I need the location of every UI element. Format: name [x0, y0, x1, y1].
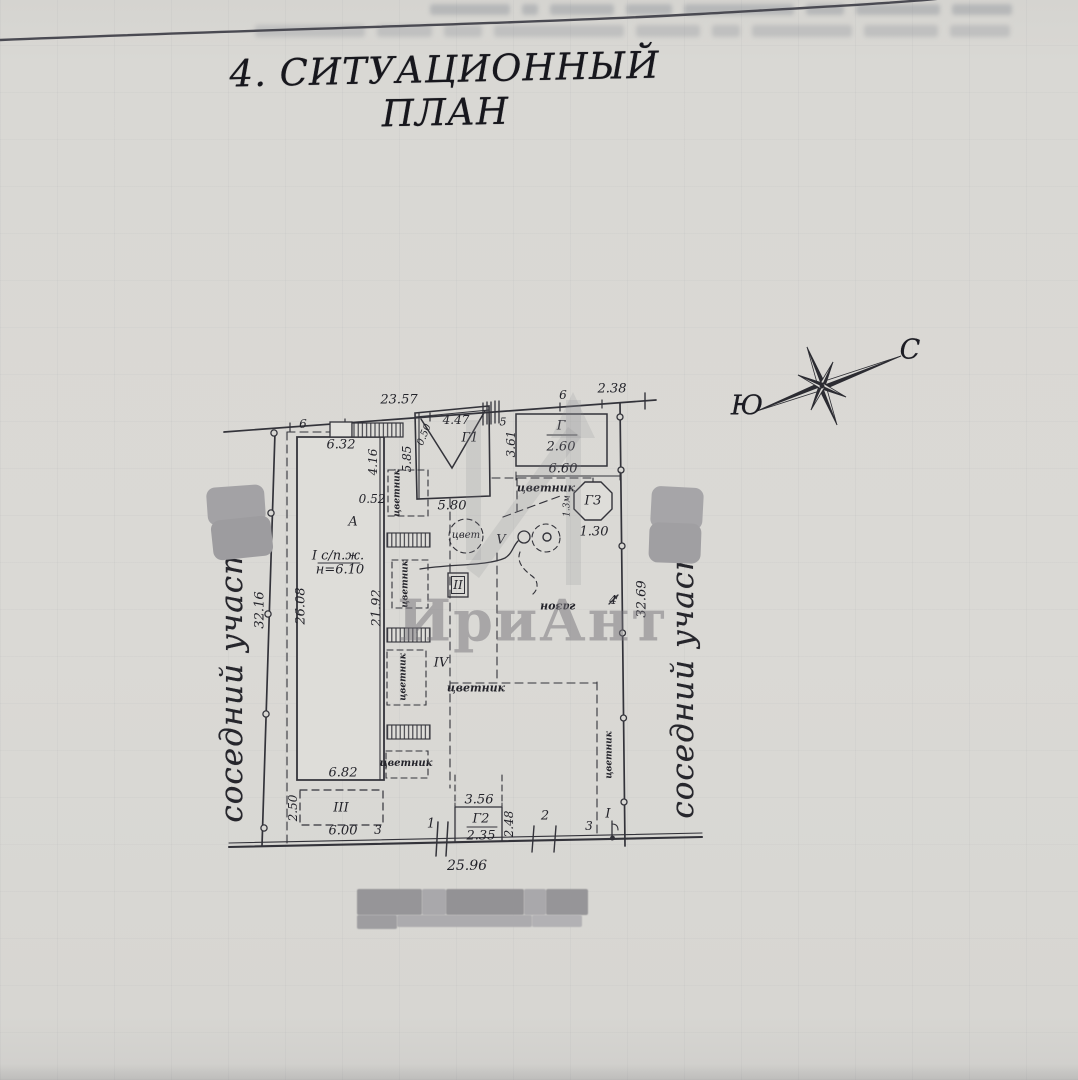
scanned-page: 4. СИТУАЦИОННЫЙ ПЛАН соседний участок со…: [0, 0, 1078, 1080]
watermark-text: ИриАнт: [397, 588, 668, 655]
page-title: 4. СИТУАЦИОННЫЙ ПЛАН: [159, 42, 731, 140]
page-bottom-shadow: [0, 1064, 1078, 1080]
compass-south-label: Ю: [731, 391, 763, 422]
compass-rose: [740, 325, 920, 440]
watermark-logo: [440, 385, 610, 600]
boundary-bottom: [229, 822, 702, 856]
redaction-blob-right-2: [648, 522, 701, 564]
building-a: [287, 422, 403, 846]
structure-g2: [455, 775, 502, 841]
gate-i-symbol: [610, 821, 618, 840]
redaction-blob-left-2: [210, 515, 274, 561]
structure-iii: [300, 790, 383, 825]
compass-north-label: С: [900, 335, 921, 366]
